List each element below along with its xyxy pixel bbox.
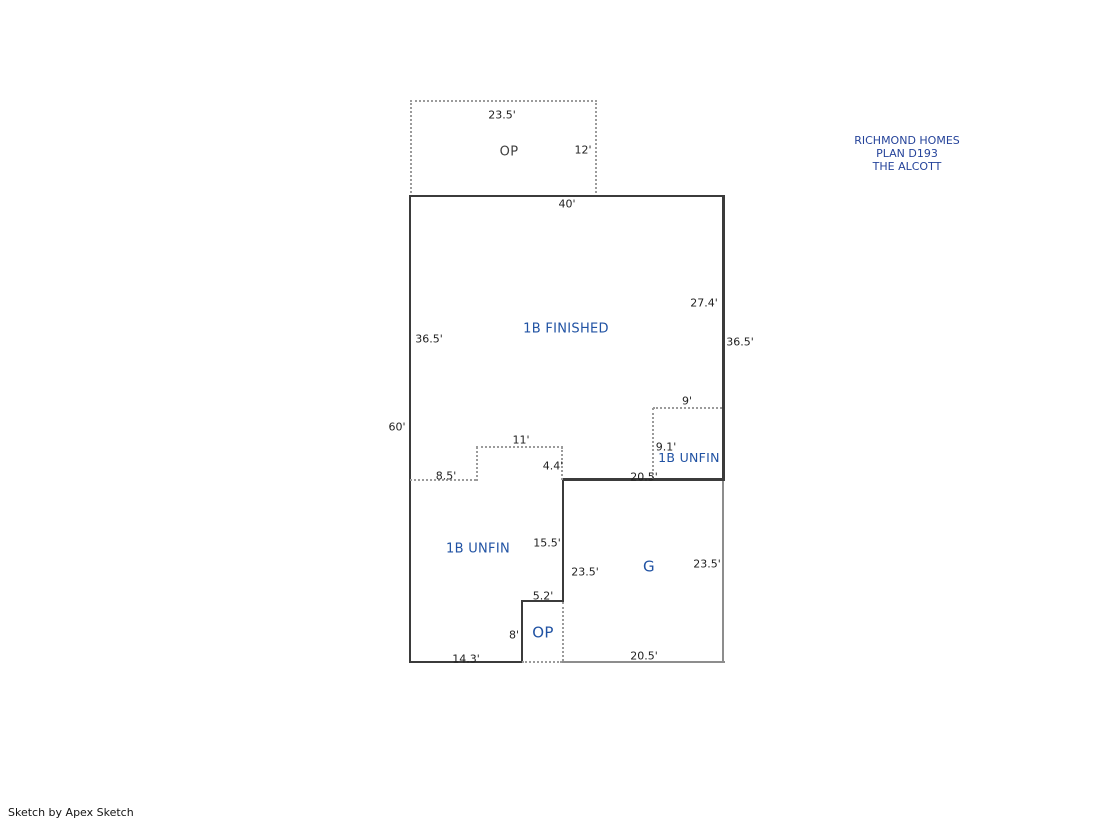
plan-title-block: RICHMOND HOMES PLAN D193 THE ALCOTT [854,134,960,173]
dim-op-top-width: 23.5' [488,110,516,121]
dim-op-bottom-top: 5.2' [533,591,554,602]
dim-main-top-width: 40' [558,199,575,210]
dim-bottom-left-width: 14.3' [452,654,480,665]
area-label-finished: 1B FINISHED [523,323,609,336]
plan-title-line-3: THE ALCOTT [854,160,960,173]
dim-step-top: 11' [512,435,529,446]
dim-right-upper: 27.4' [690,298,718,309]
floorplan-canvas: 23.5' 12' 40' 27.4' 36.5' 36.5' 60' 9' 9… [0,0,1119,821]
wall-garage-right [722,481,724,663]
dim-garage-top: 20.5' [630,472,658,483]
wall-op-bottom-bottom-dotted [522,661,562,663]
area-label-unfin-right: 1B UNFIN [658,452,720,465]
sketch-credit: Sketch by Apex Sketch [8,806,134,819]
dim-unfin-left-height: 15.5' [533,538,561,549]
dim-op-top-height: 12' [574,145,591,156]
area-label-unfin-left: 1B UNFIN [446,543,510,556]
wall-garage-left [562,478,564,603]
area-label-op-top: OP [500,146,519,159]
dim-step-left: 8.5' [436,471,457,482]
partition-unfin-right-left [652,408,654,479]
dim-garage-right-height: 23.5' [693,559,721,570]
plan-title-line-1: RICHMOND HOMES [854,134,960,147]
dim-right-full: 36.5' [726,337,754,348]
wall-op-bottom-right-dotted [562,602,564,661]
area-label-garage: G [643,560,655,575]
dim-garage-bottom: 20.5' [630,651,658,662]
dim-step-right: 4.4' [543,461,564,472]
area-label-op-bottom: OP [532,626,553,641]
partition-step-riser [476,447,478,481]
wall-main-right-upper [722,195,725,481]
dim-left-upper: 36.5' [415,334,443,345]
dim-unfin-right-width: 9' [682,396,692,407]
wall-op-bottom-left [521,600,523,663]
dim-left-total: 60' [388,422,405,433]
dim-op-bottom-left: 8' [509,630,519,641]
plan-title-line-2: PLAN D193 [854,147,960,160]
dim-garage-left-height: 23.5' [571,567,599,578]
wall-main-left [409,195,411,663]
